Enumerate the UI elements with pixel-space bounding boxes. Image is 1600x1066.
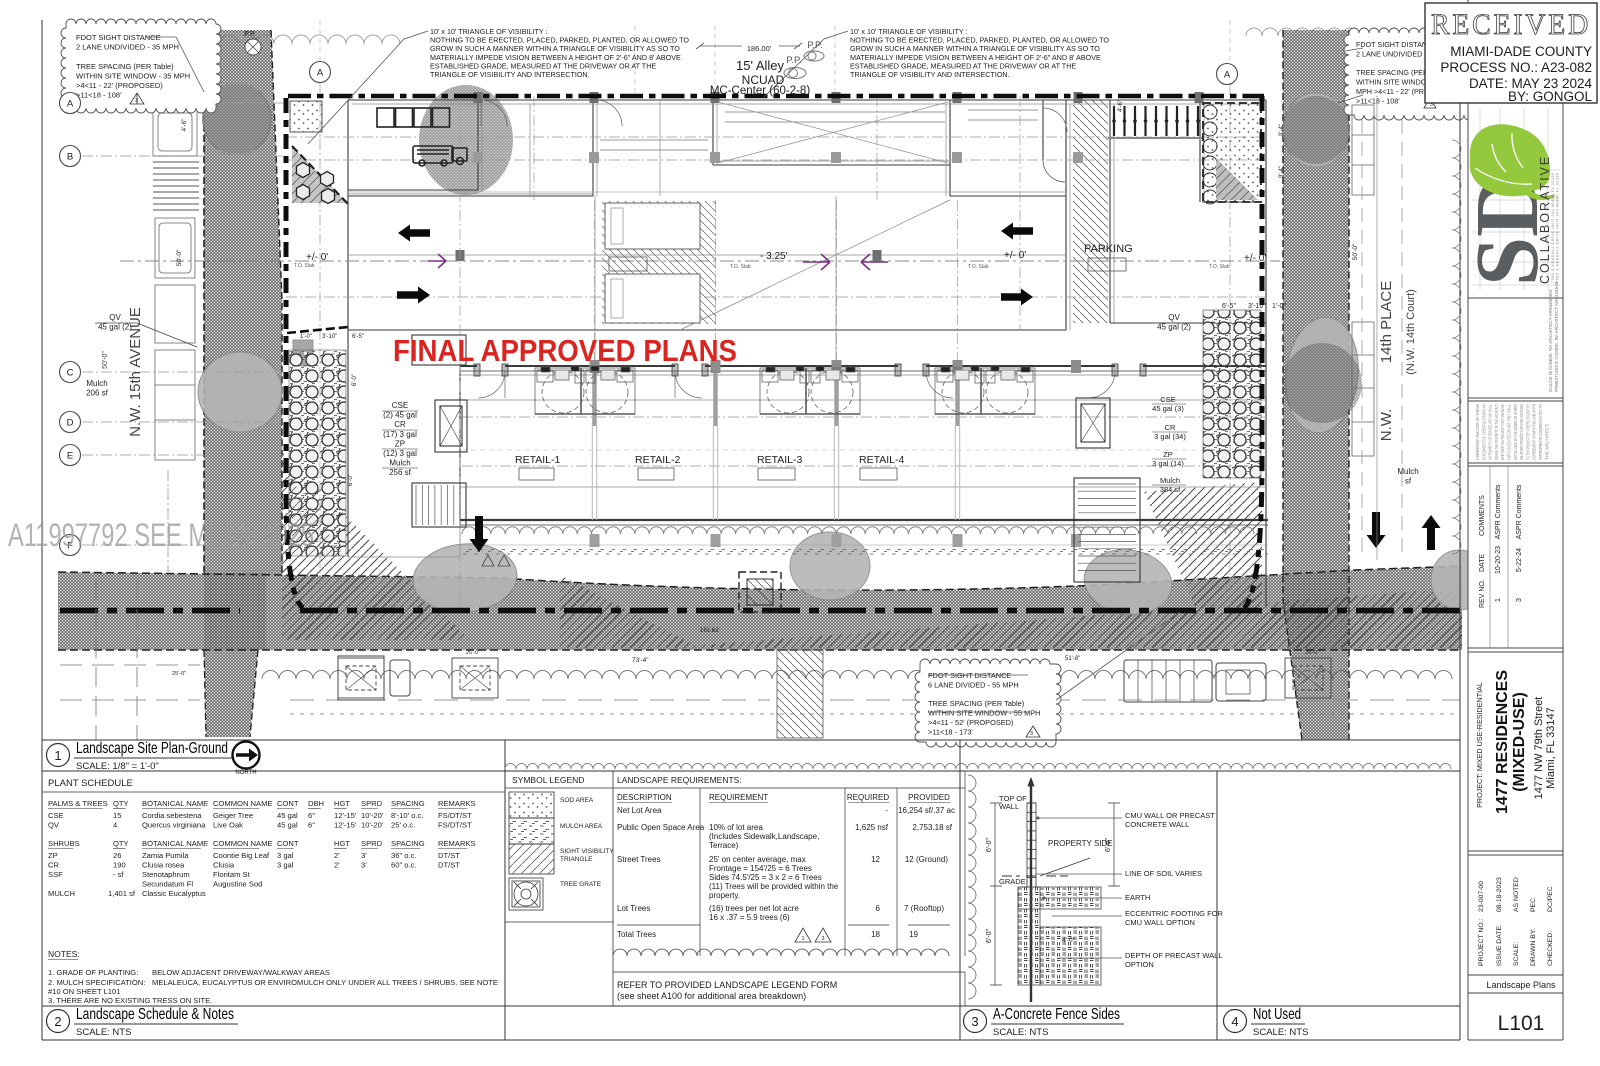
- svg-text:3: 3: [1030, 731, 1033, 737]
- svg-text:45 gal: 45 gal: [277, 821, 298, 830]
- svg-text:4'-6": 4'-6": [1118, 100, 1124, 112]
- svg-text:SCALE: NTS: SCALE: NTS: [76, 1027, 131, 1038]
- svg-text:Augustine Sod: Augustine Sod: [213, 880, 262, 889]
- svg-text:DRAWN BY:: DRAWN BY:: [1530, 928, 1537, 966]
- svg-text:MELALEUCA, EUCALYPTUS OR ENVIR: MELALEUCA, EUCALYPTUS OR ENVIROMULCH ONL…: [152, 978, 498, 987]
- svg-text:E: E: [67, 451, 73, 462]
- svg-text:property.: property.: [709, 891, 740, 900]
- svg-text:Clusia: Clusia: [213, 861, 235, 870]
- svg-text:P.P.: P.P.: [244, 31, 255, 38]
- svg-text:12 (Ground): 12 (Ground): [905, 855, 948, 864]
- svg-text:12: 12: [871, 855, 880, 864]
- svg-text:TREE SPACING (PER Table): TREE SPACING (PER Table): [928, 699, 1024, 708]
- svg-text:ZP: ZP: [1163, 450, 1173, 459]
- svg-text:PROCESS NO.: A23-082: PROCESS NO.: A23-082: [1440, 60, 1592, 75]
- svg-text:Zamia Pumila: Zamia Pumila: [142, 851, 189, 860]
- svg-text:7580 S KENDALL DRIVE UNIT 206: 7580 S KENDALL DRIVE UNIT 206 MIAMI FL 3…: [1551, 172, 1555, 283]
- svg-text:TRIANGLE OF VISIBILITY AND INT: TRIANGLE OF VISIBILITY AND INTERSECTION.: [430, 70, 590, 79]
- svg-text:Mulch: Mulch: [389, 459, 410, 468]
- svg-text:(see sheet A100 for additional: (see sheet A100 for additional area brea…: [617, 991, 806, 1001]
- svg-text:ECCENTRIC FOOTING FOR: ECCENTRIC FOOTING FOR: [1125, 909, 1223, 918]
- svg-text:50'-0": 50'-0": [1352, 243, 1359, 260]
- svg-text:16 x .37 = 5.9 trees (6): 16 x .37 = 5.9 trees (6): [709, 913, 790, 922]
- svg-text:Landscape Site Plan-Ground: Landscape Site Plan-Ground: [76, 740, 228, 757]
- svg-text:REMAIN THE PROPERTY OF THE ARC: REMAIN THE PROPERTY OF THE ARCHITECT: [1494, 404, 1499, 460]
- svg-text:Net Lot Area: Net Lot Area: [617, 806, 662, 815]
- svg-text:CONT: CONT: [277, 799, 299, 808]
- svg-text:4: 4: [1231, 1014, 1238, 1029]
- svg-text:60" o.c.: 60" o.c.: [391, 861, 417, 870]
- svg-text:FS/DT/ST: FS/DT/ST: [438, 811, 472, 820]
- svg-text:T.O. Slab: T.O. Slab: [1209, 264, 1230, 270]
- svg-text:MIAMI-DADE COUNTY: MIAMI-DADE COUNTY: [1450, 44, 1592, 59]
- svg-text:12'-15': 12'-15': [334, 811, 357, 820]
- svg-text:18: 18: [871, 930, 880, 939]
- svg-text:>4<11 - 22' (PROPOSED): >4<11 - 22' (PROPOSED): [76, 81, 163, 90]
- svg-text:Stenotaphrum: Stenotaphrum: [142, 870, 190, 879]
- svg-text:BOTANICAL NAME: BOTANICAL NAME: [142, 799, 208, 808]
- svg-text:1: 1: [1495, 598, 1502, 602]
- svg-text:QV: QV: [109, 313, 121, 322]
- svg-text:QTY: QTY: [113, 839, 129, 848]
- svg-text:3: 3: [135, 98, 138, 104]
- svg-text:Mulch: Mulch: [1397, 467, 1418, 476]
- svg-text:1477 RESIDENCES: 1477 RESIDENCES: [1494, 670, 1511, 814]
- svg-text:6'-0": 6'-0": [986, 929, 993, 943]
- svg-text:10'-20': 10'-20': [361, 821, 384, 830]
- svg-text:CSE: CSE: [392, 401, 408, 410]
- svg-text:186.00': 186.00': [747, 44, 772, 53]
- svg-text:4'-6": 4'-6": [181, 118, 188, 132]
- svg-text:Mulch: Mulch: [86, 379, 107, 388]
- svg-text:3': 3': [361, 851, 367, 860]
- svg-text:Frontage = 154'/25 = 6 Trees: Frontage = 154'/25 = 6 Trees: [709, 864, 812, 873]
- svg-text:Classic Eucalyptus: Classic Eucalyptus: [142, 889, 206, 898]
- svg-text:SCALE: NTS: SCALE: NTS: [993, 1027, 1048, 1038]
- svg-text:SPACING: SPACING: [391, 799, 425, 808]
- svg-text:1,401 sf: 1,401 sf: [108, 889, 136, 898]
- svg-text:6'-5": 6'-5": [1222, 303, 1236, 310]
- svg-text:PROJECT NO.:: PROJECT NO.:: [1478, 918, 1485, 966]
- svg-text:25' o.c.: 25' o.c.: [391, 821, 415, 830]
- svg-text:HGT: HGT: [334, 799, 350, 808]
- svg-text:6'-5": 6'-5": [352, 334, 364, 340]
- svg-text:>4<11 - 52' (PROPOSED): >4<11 - 52' (PROPOSED): [928, 718, 1013, 727]
- svg-text:10-20-23: 10-20-23: [1495, 546, 1502, 574]
- svg-text:2 LANE UNDIVIDED - 35 MPH: 2 LANE UNDIVIDED - 35 MPH: [76, 43, 179, 52]
- svg-text:16,254 sf/.37 ac: 16,254 sf/.37 ac: [898, 806, 955, 815]
- svg-text:SCALE: NTS: SCALE: NTS: [1253, 1027, 1308, 1038]
- svg-text:Clusia rosea: Clusia rosea: [142, 861, 185, 870]
- svg-text:45 gal: 45 gal: [277, 811, 298, 820]
- svg-text:CR: CR: [394, 420, 406, 429]
- svg-text:25'-0": 25'-0": [466, 650, 480, 656]
- svg-text:7580 S KENDALL DRIVE UNIT 206: 7580 S KENDALL DRIVE UNIT 206 MIAMI FL 3…: [1556, 172, 1560, 283]
- svg-text:APPROPRIATE COMPENSATION TO: APPROPRIATE COMPENSATION TO: [1538, 404, 1543, 460]
- svg-text:QTY: QTY: [113, 799, 129, 808]
- svg-text:sf: sf: [1405, 477, 1412, 486]
- svg-text:REMARKS: REMARKS: [438, 799, 476, 808]
- svg-text:T.O. Slab: T.O. Slab: [294, 263, 315, 269]
- svg-text:6: 6: [876, 904, 881, 913]
- svg-text:A: A: [67, 99, 74, 110]
- svg-text:3'-10": 3'-10": [322, 334, 337, 340]
- svg-text:CR: CR: [1165, 423, 1176, 432]
- svg-text:(17) 3 gal: (17) 3 gal: [383, 430, 417, 439]
- svg-text:L101: L101: [1498, 1012, 1545, 1035]
- svg-text:SHRUBS: SHRUBS: [48, 839, 80, 848]
- svg-text:1477 NW 79th Street: 1477 NW 79th Street: [1533, 697, 1545, 800]
- svg-text:1: 1: [801, 936, 804, 942]
- svg-text:CR: CR: [48, 861, 59, 870]
- svg-text:+/- 0': +/- 0': [306, 252, 328, 263]
- svg-text:COMMON NAME: COMMON NAME: [213, 799, 272, 808]
- svg-text:FDOT SIGHT DISTANCE: FDOT SIGHT DISTANCE: [76, 33, 161, 42]
- svg-text:25'-0": 25'-0": [1305, 650, 1319, 656]
- svg-text:- 3.25': - 3.25': [760, 251, 788, 262]
- svg-text:WHETHER THE PROJECT THEY ARE M: WHETHER THE PROJECT THEY ARE MADE: [1500, 404, 1505, 460]
- svg-text:COMMENTS: COMMENTS: [1479, 495, 1486, 536]
- svg-text:DBH: DBH: [308, 799, 324, 808]
- svg-text:>11<18 - 173': >11<18 - 173': [928, 727, 973, 736]
- svg-text:3: 3: [821, 936, 824, 942]
- svg-text:ON OTHER PROJECTS OR FOR ADDIT: ON OTHER PROJECTS OR FOR ADDITIONS: [1519, 404, 1524, 460]
- svg-text:51'-8": 51'-8": [1065, 656, 1080, 662]
- svg-text:ZP: ZP: [48, 851, 58, 860]
- svg-text:DC/PEC: DC/PEC: [1547, 886, 1554, 912]
- svg-text:SYMBOL LEGEND: SYMBOL LEGEND: [512, 775, 584, 785]
- svg-text:REFER TO PROVIDED LANDSCAPE LE: REFER TO PROVIDED LANDSCAPE LEGEND FORM: [617, 980, 837, 990]
- svg-text:NOTES:: NOTES:: [48, 949, 80, 959]
- svg-text:1: 1: [54, 748, 61, 763]
- svg-text:QV: QV: [1168, 313, 1180, 322]
- svg-text:THE ARCHITECT.: THE ARCHITECT.: [1544, 423, 1549, 460]
- svg-text:(Includes Sidewalk,Landscape,: (Includes Sidewalk,Landscape,: [709, 832, 819, 841]
- svg-text:AS NOTED: AS NOTED: [1513, 877, 1520, 912]
- svg-text:4: 4: [113, 821, 117, 830]
- svg-text:EARTH: EARTH: [1125, 893, 1150, 902]
- svg-text:A: A: [317, 68, 324, 79]
- svg-text:- sf: - sf: [113, 870, 124, 879]
- svg-text:NOT BE USED BY THE OWNER OR OT: NOT BE USED BY THE OWNER OR OTHERS: [1513, 404, 1518, 460]
- svg-text:BOTANICAL NAME: BOTANICAL NAME: [142, 839, 208, 848]
- svg-text:6'-0": 6'-0": [348, 474, 354, 486]
- svg-text:50'-0": 50'-0": [176, 249, 183, 266]
- svg-text:(16) trees per net lot acre: (16) trees per net lot acre: [709, 904, 799, 913]
- svg-text:206 sf: 206 sf: [86, 389, 109, 398]
- svg-text:C: C: [67, 368, 74, 379]
- svg-text:SIGHT VISIBILITY: SIGHT VISIBILITY: [560, 848, 614, 855]
- svg-text:19: 19: [909, 930, 918, 939]
- svg-text:FOR IS EXECUTED OR NOT. THEY S: FOR IS EXECUTED OR NOT. THEY SHALL: [1507, 404, 1512, 460]
- svg-text:FDOT SIGHT DISTANCE: FDOT SIGHT DISTANCE: [928, 671, 1011, 680]
- svg-text:23-007-00: 23-007-00: [1478, 881, 1485, 912]
- svg-text:2: 2: [54, 1014, 61, 1029]
- svg-text:A11997792 SEE MLS© 2025: A11997792 SEE MLS© 2025: [8, 517, 314, 553]
- svg-text:TO THIS PROJECT BY OTHERS. EXC: TO THIS PROJECT BY OTHERS. EXCEPT BY: [1525, 404, 1530, 460]
- svg-text:12'-15': 12'-15': [334, 821, 357, 830]
- svg-text:Landscape Schedule & Notes: Landscape Schedule & Notes: [76, 1006, 234, 1023]
- svg-text:MULCH: MULCH: [48, 889, 75, 898]
- svg-text:3. THERE ARE NO EXISTING TRES: 3. THERE ARE NO EXISTING TRESS ON SITE.: [48, 996, 212, 1005]
- svg-text:SPRD: SPRD: [361, 839, 383, 848]
- svg-text:DULCE M CONDE. RA ARCHITECT: DULCE M CONDE. RA ARCHITECT AR93398003: [1548, 289, 1553, 392]
- svg-text:COMMON NAME: COMMON NAME: [213, 839, 272, 848]
- svg-text:CONT: CONT: [277, 839, 299, 848]
- svg-text:RETAIL-3: RETAIL-3: [757, 454, 802, 466]
- svg-text:Street Trees: Street Trees: [617, 855, 661, 864]
- svg-text:RETAIL-1: RETAIL-1: [515, 454, 560, 466]
- svg-text:RECEIVED: RECEIVED: [1431, 8, 1591, 41]
- svg-text:REQUIREMENT: REQUIREMENT: [709, 793, 768, 802]
- svg-text:1,625 nsf: 1,625 nsf: [855, 823, 889, 832]
- svg-text:Sides 74.5'/25 = 3 x 2 = 6 Tre: Sides 74.5'/25 = 3 x 2 = 6 Trees: [709, 873, 822, 882]
- svg-text:N.W.: N.W.: [1378, 409, 1395, 442]
- svg-text:45 gal (3): 45 gal (3): [1152, 404, 1184, 413]
- svg-text:Mulch: Mulch: [1160, 476, 1180, 485]
- svg-text:DESCRIPTION: DESCRIPTION: [617, 793, 672, 802]
- svg-text:GRADE: GRADE: [999, 877, 1026, 886]
- svg-text:FS/DT/ST: FS/DT/ST: [438, 821, 472, 830]
- svg-text:+/- 0': +/- 0': [1004, 250, 1026, 261]
- svg-text:36" o.c.: 36" o.c.: [391, 851, 417, 860]
- svg-text:10% of lot area: 10% of lot area: [709, 823, 763, 832]
- svg-text:3': 3': [361, 861, 367, 870]
- svg-text:1'-0": 1'-0": [300, 334, 312, 340]
- svg-text:3'-10": 3'-10": [1248, 303, 1266, 310]
- svg-text:Public Open Space Area: Public Open Space Area: [617, 823, 705, 832]
- svg-text:Geiger Tree: Geiger Tree: [213, 811, 253, 820]
- svg-text:6": 6": [308, 821, 315, 830]
- svg-text:SSF: SSF: [48, 870, 63, 879]
- svg-text:2,753.18 sf: 2,753.18 sf: [912, 823, 952, 832]
- svg-text:ISSUE DATE:: ISSUE DATE:: [1496, 924, 1503, 966]
- svg-text:PEC: PEC: [1530, 898, 1537, 912]
- svg-text:Miami, FL 33147: Miami, FL 33147: [1545, 707, 1557, 789]
- svg-text:A-Concrete Fence Sides: A-Concrete Fence Sides: [993, 1006, 1120, 1023]
- svg-text:RETAIL-4: RETAIL-4: [859, 454, 904, 466]
- svg-text:6'-0": 6'-0": [352, 374, 358, 386]
- svg-text:Terrace): Terrace): [709, 841, 739, 850]
- svg-text:Floritam St: Floritam St: [213, 870, 251, 879]
- svg-text:Quercus virginiana: Quercus virginiana: [142, 821, 206, 830]
- svg-text:161.63': 161.63': [700, 628, 720, 634]
- svg-text:PROVIDED: PROVIDED: [908, 793, 950, 802]
- svg-text:AGREEMENT IN WRITING AND WITH: AGREEMENT IN WRITING AND WITH: [1532, 404, 1537, 460]
- svg-text:Live Oak: Live Oak: [213, 821, 243, 830]
- svg-text:15: 15: [113, 811, 121, 820]
- svg-text:PROJECT: MIXED USE-RESIDENTIAL: PROJECT: MIXED USE-RESIDENTIAL: [1475, 682, 1484, 808]
- svg-text:T.O. Slab: T.O. Slab: [968, 264, 989, 270]
- svg-text:(N.W. 14th Court): (N.W. 14th Court): [1405, 289, 1417, 375]
- svg-text:6'-0": 6'-0": [986, 838, 993, 852]
- svg-text:FINAL APPROVED PLANS: FINAL APPROVED PLANS: [393, 333, 737, 368]
- svg-text:190: 190: [113, 861, 126, 870]
- svg-text:OWNERSHIP AND USE OF THESE: OWNERSHIP AND USE OF THESE: [1475, 404, 1480, 460]
- svg-text:DOCUMENTS & SPECIFICATIONS AS: DOCUMENTS & SPECIFICATIONS AS: [1481, 404, 1486, 460]
- svg-text:(12) 3 gal: (12) 3 gal: [383, 449, 417, 458]
- svg-text:LANDSCAPE REQUIREMENTS:: LANDSCAPE REQUIREMENTS:: [617, 775, 742, 785]
- svg-text:WITHIN SITE WINDOW - 35 MPH: WITHIN SITE WINDOW - 35 MPH: [76, 71, 190, 80]
- svg-text:3: 3: [1516, 598, 1523, 602]
- svg-text:COLLABORATIVE: COLLABORATIVE: [1538, 155, 1552, 284]
- svg-text:4'-0": 4'-0": [1062, 937, 1076, 944]
- svg-text:TREE SPACING (PER Table): TREE SPACING (PER Table): [76, 62, 174, 71]
- svg-text:10'-20': 10'-20': [361, 811, 384, 820]
- svg-text:REMARKS: REMARKS: [438, 839, 476, 848]
- svg-text:25' on center average, max: 25' on center average, max: [709, 855, 806, 864]
- svg-text:256 sf: 256 sf: [389, 468, 412, 477]
- svg-text:Secundatum Fl: Secundatum Fl: [142, 880, 193, 889]
- svg-text:ZP: ZP: [395, 439, 405, 448]
- svg-text:26: 26: [113, 851, 121, 860]
- svg-text:WITHIN SITE WINDOW - 55 MPH: WITHIN SITE WINDOW - 55 MPH: [928, 709, 1041, 718]
- svg-text:REQUIRED: REQUIRED: [847, 793, 889, 802]
- svg-text:Cordia sebestena: Cordia sebestena: [142, 811, 202, 820]
- svg-text:DT/ST: DT/ST: [438, 861, 460, 870]
- svg-text:6'-0": 6'-0": [1105, 838, 1112, 852]
- svg-text:SCALE:: SCALE:: [1513, 942, 1520, 966]
- svg-text:Total Trees: Total Trees: [617, 930, 656, 939]
- svg-text:NORTH: NORTH: [235, 770, 256, 776]
- svg-text:CONCRETE WALL: CONCRETE WALL: [1125, 820, 1189, 829]
- svg-text:Landscape Plans: Landscape Plans: [1486, 980, 1556, 990]
- svg-text:Not Used: Not Used: [1253, 1006, 1301, 1023]
- svg-text:384 sf: 384 sf: [1160, 485, 1181, 494]
- svg-text:3 gal: 3 gal: [277, 861, 294, 870]
- svg-text:3: 3: [971, 1014, 978, 1029]
- svg-text:2. MULCH SPECIFICATION:: 2. MULCH SPECIFICATION:: [48, 978, 145, 987]
- svg-text:T.O. Slab: T.O. Slab: [730, 264, 751, 270]
- svg-text:(2) 45 gal: (2) 45 gal: [383, 411, 417, 420]
- svg-text:45 gal (2): 45 gal (2): [1157, 323, 1191, 332]
- svg-text:N.W. 15th AVENUE: N.W. 15th AVENUE: [127, 307, 144, 437]
- svg-text:9'-4": 9'-4": [1279, 166, 1285, 178]
- svg-text:9'-4": 9'-4": [1279, 124, 1285, 136]
- svg-text:CMU WALL OPTION: CMU WALL OPTION: [1125, 918, 1195, 927]
- svg-text:2': 2': [334, 851, 340, 860]
- svg-text:MC-Center (60-2-8): MC-Center (60-2-8): [710, 85, 810, 97]
- svg-text:SOD AREA: SOD AREA: [560, 797, 594, 804]
- svg-text:TRIANGLE: TRIANGLE: [560, 856, 593, 863]
- svg-text:SPRD: SPRD: [361, 799, 383, 808]
- svg-text:Coontie Big Leaf: Coontie Big Leaf: [213, 851, 270, 860]
- svg-text:OPTION: OPTION: [1125, 960, 1154, 969]
- svg-text:RETAIL-2: RETAIL-2: [635, 454, 680, 466]
- svg-text:25'-0": 25'-0": [172, 671, 186, 677]
- svg-text:>11<18 - 108': >11<18 - 108': [76, 91, 122, 100]
- svg-text:BELOW ADJACENT DRIVEWAY/WALKWA: BELOW ADJACENT DRIVEWAY/WALKWAY AREAS: [152, 968, 330, 977]
- svg-text:PLANT SCHEDULE: PLANT SCHEDULE: [48, 778, 133, 789]
- svg-text:PROPERTY SIDE: PROPERTY SIDE: [1048, 839, 1113, 848]
- svg-text:BY: GONGOL: BY: GONGOL: [1508, 89, 1593, 104]
- svg-text:CMU WALL OR PRECAST: CMU WALL OR PRECAST: [1125, 811, 1215, 820]
- svg-text:ASPR Comments: ASPR Comments: [1495, 484, 1502, 539]
- svg-text:CSE: CSE: [1160, 395, 1175, 404]
- svg-text:HGT: HGT: [334, 839, 350, 848]
- svg-text:DATE: DATE: [1479, 554, 1486, 572]
- svg-text:(11) Trees will be provided wi: (11) Trees will be provided within the: [709, 882, 839, 891]
- svg-text:15' Alley: 15' Alley: [736, 58, 785, 73]
- svg-text:6": 6": [308, 811, 315, 820]
- svg-text:Lot Trees: Lot Trees: [617, 904, 650, 913]
- svg-text:14th PLACE: 14th PLACE: [1378, 281, 1395, 364]
- svg-text:QV: QV: [48, 821, 60, 830]
- svg-text:MULCH AREA: MULCH AREA: [560, 823, 603, 830]
- svg-text:P.P.: P.P.: [807, 40, 823, 51]
- svg-text:3 gal (34): 3 gal (34): [1154, 432, 1186, 441]
- svg-text:PARKING: PARKING: [1084, 243, 1133, 255]
- svg-text:73'-4": 73'-4": [632, 657, 649, 664]
- svg-text:WALL: WALL: [999, 802, 1019, 811]
- svg-text:A: A: [1224, 70, 1231, 81]
- svg-text:8'-10' o.c.: 8'-10' o.c.: [391, 811, 423, 820]
- svg-text:LINE OF SOIL VARIES: LINE OF SOIL VARIES: [1125, 869, 1202, 878]
- svg-text:INSTRUMENTS OF SERVICE ARE AND: INSTRUMENTS OF SERVICE ARE AND SHALL: [1488, 404, 1493, 460]
- svg-text:PALMS & TREES: PALMS & TREES: [48, 799, 108, 808]
- svg-text:50'-0": 50'-0": [102, 351, 109, 369]
- svg-text:CSE: CSE: [48, 811, 64, 820]
- svg-text:>11<18 - 108': >11<18 - 108': [1356, 96, 1400, 105]
- svg-text:-: -: [885, 806, 888, 815]
- svg-text:1. GRADE OF PLANTING:: 1. GRADE OF PLANTING:: [48, 968, 138, 977]
- svg-text:B: B: [67, 152, 73, 163]
- svg-text:D: D: [67, 418, 74, 429]
- svg-text:REV NO.: REV NO.: [1479, 579, 1486, 608]
- svg-text:2': 2': [334, 861, 340, 870]
- svg-text:3 gal: 3 gal: [277, 851, 294, 860]
- svg-text:3 gal (14): 3 gal (14): [1152, 459, 1184, 468]
- svg-text:ASPR Comments: ASPR Comments: [1516, 484, 1523, 539]
- svg-text:TREE GRATE: TREE GRATE: [560, 881, 602, 888]
- svg-text:CHECKED:: CHECKED:: [1547, 931, 1554, 966]
- svg-text:SCALE: 1/8" = 1'-0": SCALE: 1/8" = 1'-0": [76, 761, 159, 772]
- svg-text:#10 ON SHEET L101: #10 ON SHEET L101: [48, 987, 120, 996]
- svg-text:+/- 0': +/- 0': [1244, 253, 1266, 264]
- svg-text:(MIXED-USE): (MIXED-USE): [1511, 692, 1528, 792]
- svg-text:DT/ST: DT/ST: [438, 851, 460, 860]
- svg-text:PR98371403 E CONDE. RA ARCHI: PR98371403 E CONDE. RA ARCHITECT AR93346…: [1554, 281, 1559, 392]
- svg-text:TRIANGLE OF VISIBILITY AND INT: TRIANGLE OF VISIBILITY AND INTERSECTION.: [850, 70, 1010, 79]
- svg-text:P.P.: P.P.: [786, 55, 802, 66]
- svg-text:6 LANE DIVIDED - 55 MPH: 6 LANE DIVIDED - 55 MPH: [928, 680, 1019, 689]
- svg-text:08-18-2023: 08-18-2023: [1496, 877, 1503, 912]
- svg-text:7 (Rooftop): 7 (Rooftop): [904, 904, 944, 913]
- svg-text:DEPTH OF PRECAST WALL: DEPTH OF PRECAST WALL: [1125, 951, 1223, 960]
- svg-text:SPACING: SPACING: [391, 839, 425, 848]
- svg-text:1'-0": 1'-0": [1272, 303, 1286, 310]
- svg-text:5-22-24: 5-22-24: [1516, 548, 1523, 572]
